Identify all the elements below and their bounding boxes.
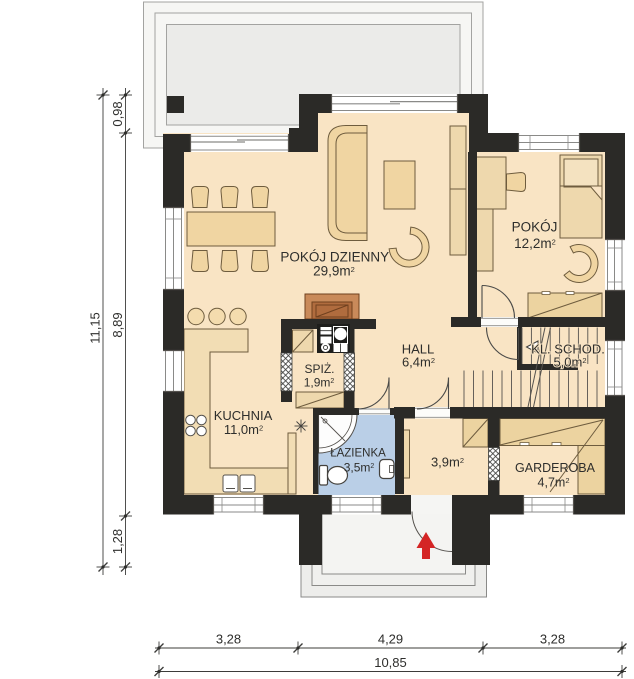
svg-text:5,0m2: 5,0m2 bbox=[553, 355, 586, 370]
svg-text:SPIŻ.: SPIŻ. bbox=[304, 362, 334, 376]
svg-text:3,28: 3,28 bbox=[216, 632, 241, 647]
svg-text:4,29: 4,29 bbox=[378, 632, 403, 647]
svg-text:3,9m2: 3,9m2 bbox=[431, 455, 464, 470]
svg-text:11,15: 11,15 bbox=[88, 312, 103, 344]
svg-text:10,85: 10,85 bbox=[374, 655, 407, 670]
svg-text:3,5m2: 3,5m2 bbox=[344, 461, 375, 475]
svg-text:1,28: 1,28 bbox=[110, 529, 125, 554]
svg-text:GARDEROBA: GARDEROBA bbox=[515, 461, 596, 475]
svg-text:KUCHNIA: KUCHNIA bbox=[214, 408, 273, 423]
svg-text:1,9m2: 1,9m2 bbox=[304, 376, 335, 390]
svg-text:11,0m2: 11,0m2 bbox=[224, 422, 263, 437]
svg-text:POKÓJ DZIENNY: POKÓJ DZIENNY bbox=[280, 250, 389, 265]
svg-text:3,28: 3,28 bbox=[540, 632, 565, 647]
svg-text:0,98: 0,98 bbox=[110, 101, 125, 126]
svg-text:12,2m2: 12,2m2 bbox=[514, 236, 556, 251]
svg-text:ŁAZIENKA: ŁAZIENKA bbox=[330, 448, 386, 460]
svg-text:8,89: 8,89 bbox=[110, 312, 125, 337]
svg-text:6,4m2: 6,4m2 bbox=[402, 355, 435, 370]
svg-text:POKÓJ: POKÓJ bbox=[512, 220, 558, 235]
svg-text:4,7m2: 4,7m2 bbox=[538, 476, 570, 490]
svg-text:29,9m2: 29,9m2 bbox=[313, 264, 355, 279]
